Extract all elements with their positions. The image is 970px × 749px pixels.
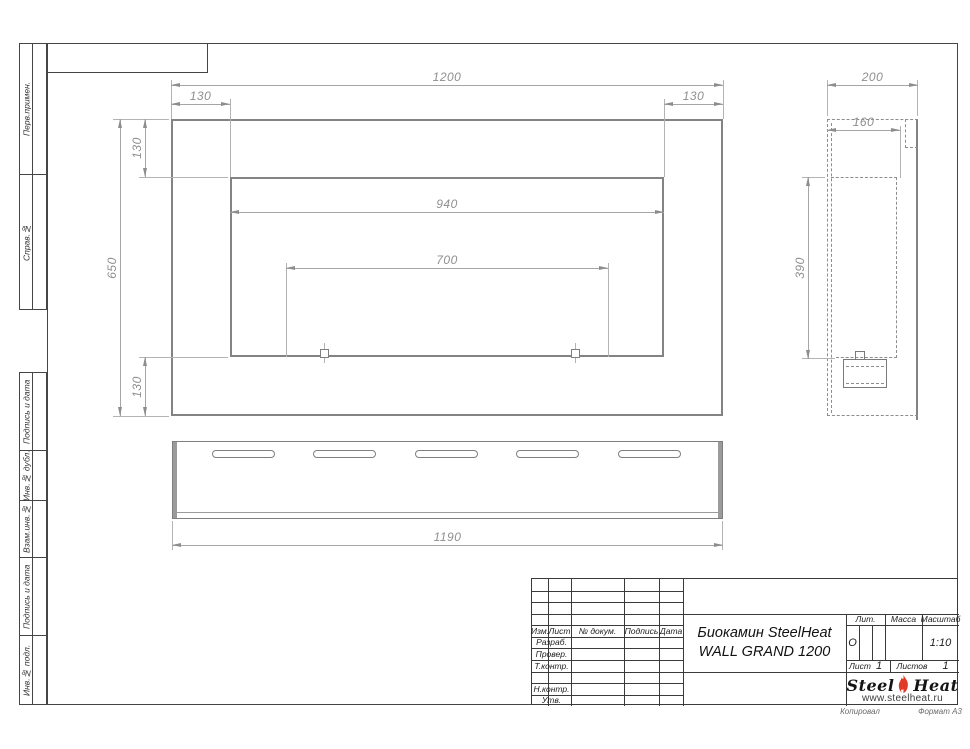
document-title-line1: Биокамин SteelHeat bbox=[697, 625, 831, 641]
margin-cell-inv-dubl: Инв.№ дубл. bbox=[19, 450, 47, 501]
side-view-cavity-top-hidden bbox=[831, 177, 897, 178]
extension-line bbox=[664, 99, 665, 177]
margin-cell-podpis-data-2: Подпись и дата bbox=[19, 557, 47, 636]
side-view-bracket-hidden bbox=[905, 119, 906, 148]
dim-front-opening-width: 940 bbox=[230, 212, 664, 213]
margin-label: Справ.№ bbox=[20, 175, 33, 309]
margin-cell-vzam-inv: Взам.инв.№ bbox=[19, 500, 47, 558]
top-left-stamp-box bbox=[47, 43, 208, 73]
side-view-back-wall-inner-hidden bbox=[831, 123, 832, 413]
title-block-line bbox=[532, 591, 683, 592]
extension-line bbox=[113, 416, 169, 417]
col-doc: № докум. bbox=[571, 625, 624, 637]
row-razrab: Разраб. bbox=[532, 637, 571, 649]
mass-label: Масса bbox=[885, 614, 922, 626]
col-sign: Подпись bbox=[624, 625, 659, 637]
dim-front-burner-width: 700 bbox=[286, 268, 608, 269]
side-view-bottom-hidden bbox=[827, 415, 918, 416]
document-title: Биокамин SteelHeat WALL GRAND 1200 bbox=[683, 614, 846, 672]
side-view-burner-tab bbox=[855, 351, 865, 360]
margin-cell-sprav-no: Справ.№ bbox=[19, 174, 47, 310]
title-block-line bbox=[659, 579, 660, 706]
title-block-line bbox=[890, 660, 891, 672]
row-tkontr: Т.контр. bbox=[532, 660, 571, 672]
dim-plan-length: 1190 bbox=[172, 545, 723, 546]
side-view-cavity-front-hidden bbox=[896, 177, 897, 358]
dim-front-corner-left: 130 bbox=[171, 104, 230, 105]
col-list: Лист bbox=[548, 625, 571, 637]
footer-format-label: Формат А3 bbox=[900, 707, 970, 716]
title-block-line bbox=[859, 625, 860, 660]
title-block-line bbox=[872, 625, 873, 660]
extension-line bbox=[608, 263, 609, 357]
logo-url: www.steelheat.ru bbox=[862, 693, 943, 704]
row-nkontr: Н.контр. bbox=[532, 683, 571, 695]
extension-line bbox=[900, 126, 901, 178]
col-izm: Изм. bbox=[532, 625, 548, 637]
dim-front-overall-height: 650 bbox=[120, 119, 121, 416]
sheets-value: 1 bbox=[934, 660, 957, 672]
title-block-line bbox=[571, 579, 572, 706]
margin-label: Взам.инв.№ bbox=[20, 501, 33, 557]
margin-cell-inv-podl: Инв.№ подл. bbox=[19, 635, 47, 705]
lit-label: Лит. bbox=[846, 614, 885, 626]
margin-label: Перв.примен. bbox=[20, 44, 33, 174]
lit-value: О bbox=[846, 625, 859, 660]
side-view-burner-bottom-line bbox=[846, 383, 884, 384]
margin-label: Инв.№ подл. bbox=[20, 636, 33, 704]
title-block-line bbox=[624, 579, 625, 706]
vent-slot bbox=[415, 450, 478, 458]
extension-line bbox=[139, 177, 228, 178]
title-block: Изм. Лист № докум. Подпись Дата Разраб. … bbox=[531, 578, 958, 705]
extension-line bbox=[230, 99, 231, 177]
scale-label: Масштаб bbox=[922, 614, 959, 626]
plan-view-end-cap-left bbox=[173, 442, 177, 518]
burner-clip-left bbox=[320, 349, 329, 358]
plan-view-fold-line bbox=[177, 512, 718, 513]
drawing-sheet: Перв.примен. Справ.№ Подпись и дата Инв.… bbox=[0, 0, 970, 749]
dim-front-margin-top: 130 bbox=[145, 119, 146, 177]
margin-cell-perv-primen: Перв.примен. bbox=[19, 43, 47, 175]
vent-slot bbox=[516, 450, 579, 458]
row-prover: Провер. bbox=[532, 648, 571, 660]
sheets-label: Листов bbox=[892, 660, 932, 672]
extension-line bbox=[286, 263, 287, 357]
dim-side-inner-depth: 160 bbox=[827, 130, 900, 131]
side-view-bracket-hidden bbox=[905, 147, 918, 148]
dim-front-margin-bottom: 130 bbox=[145, 357, 146, 416]
vent-slot bbox=[313, 450, 376, 458]
extension-line bbox=[723, 80, 724, 119]
margin-cell-podpis-data-1: Подпись и дата bbox=[19, 372, 47, 451]
scale-value: 1:10 bbox=[922, 625, 959, 660]
document-title-line2: WALL GRAND 1200 bbox=[699, 644, 831, 660]
dim-side-inner-height: 390 bbox=[808, 177, 809, 359]
margin-label: Подпись и дата bbox=[20, 373, 33, 450]
dim-side-depth: 200 bbox=[827, 85, 918, 86]
extension-line bbox=[139, 357, 228, 358]
dim-front-overall-width: 1200 bbox=[171, 85, 723, 86]
side-view-back-wall-hidden bbox=[827, 119, 828, 416]
logo-wordmark: Steel Heat bbox=[847, 674, 959, 695]
dim-front-corner-right: 130 bbox=[664, 104, 723, 105]
side-view-front-face bbox=[916, 119, 918, 420]
plan-view-end-cap-right bbox=[718, 442, 722, 518]
footer-copy-label: Копировал bbox=[820, 707, 900, 716]
side-view-burner-fill-line bbox=[846, 366, 884, 367]
title-block-line bbox=[532, 602, 683, 603]
vent-slot bbox=[618, 450, 681, 458]
col-date: Дата bbox=[659, 625, 683, 637]
margin-label: Инв.№ дубл. bbox=[20, 451, 33, 500]
margin-label: Подпись и дата bbox=[20, 558, 33, 635]
side-view-shelf-hidden bbox=[836, 357, 897, 358]
vent-slot bbox=[212, 450, 275, 458]
burner-clip-right bbox=[571, 349, 580, 358]
company-logo: Steel Heat www.steelheat.ru bbox=[846, 672, 959, 707]
sheet-value: 1 bbox=[870, 660, 888, 672]
flame-icon bbox=[896, 674, 911, 694]
row-utv: Утв. bbox=[532, 695, 571, 707]
